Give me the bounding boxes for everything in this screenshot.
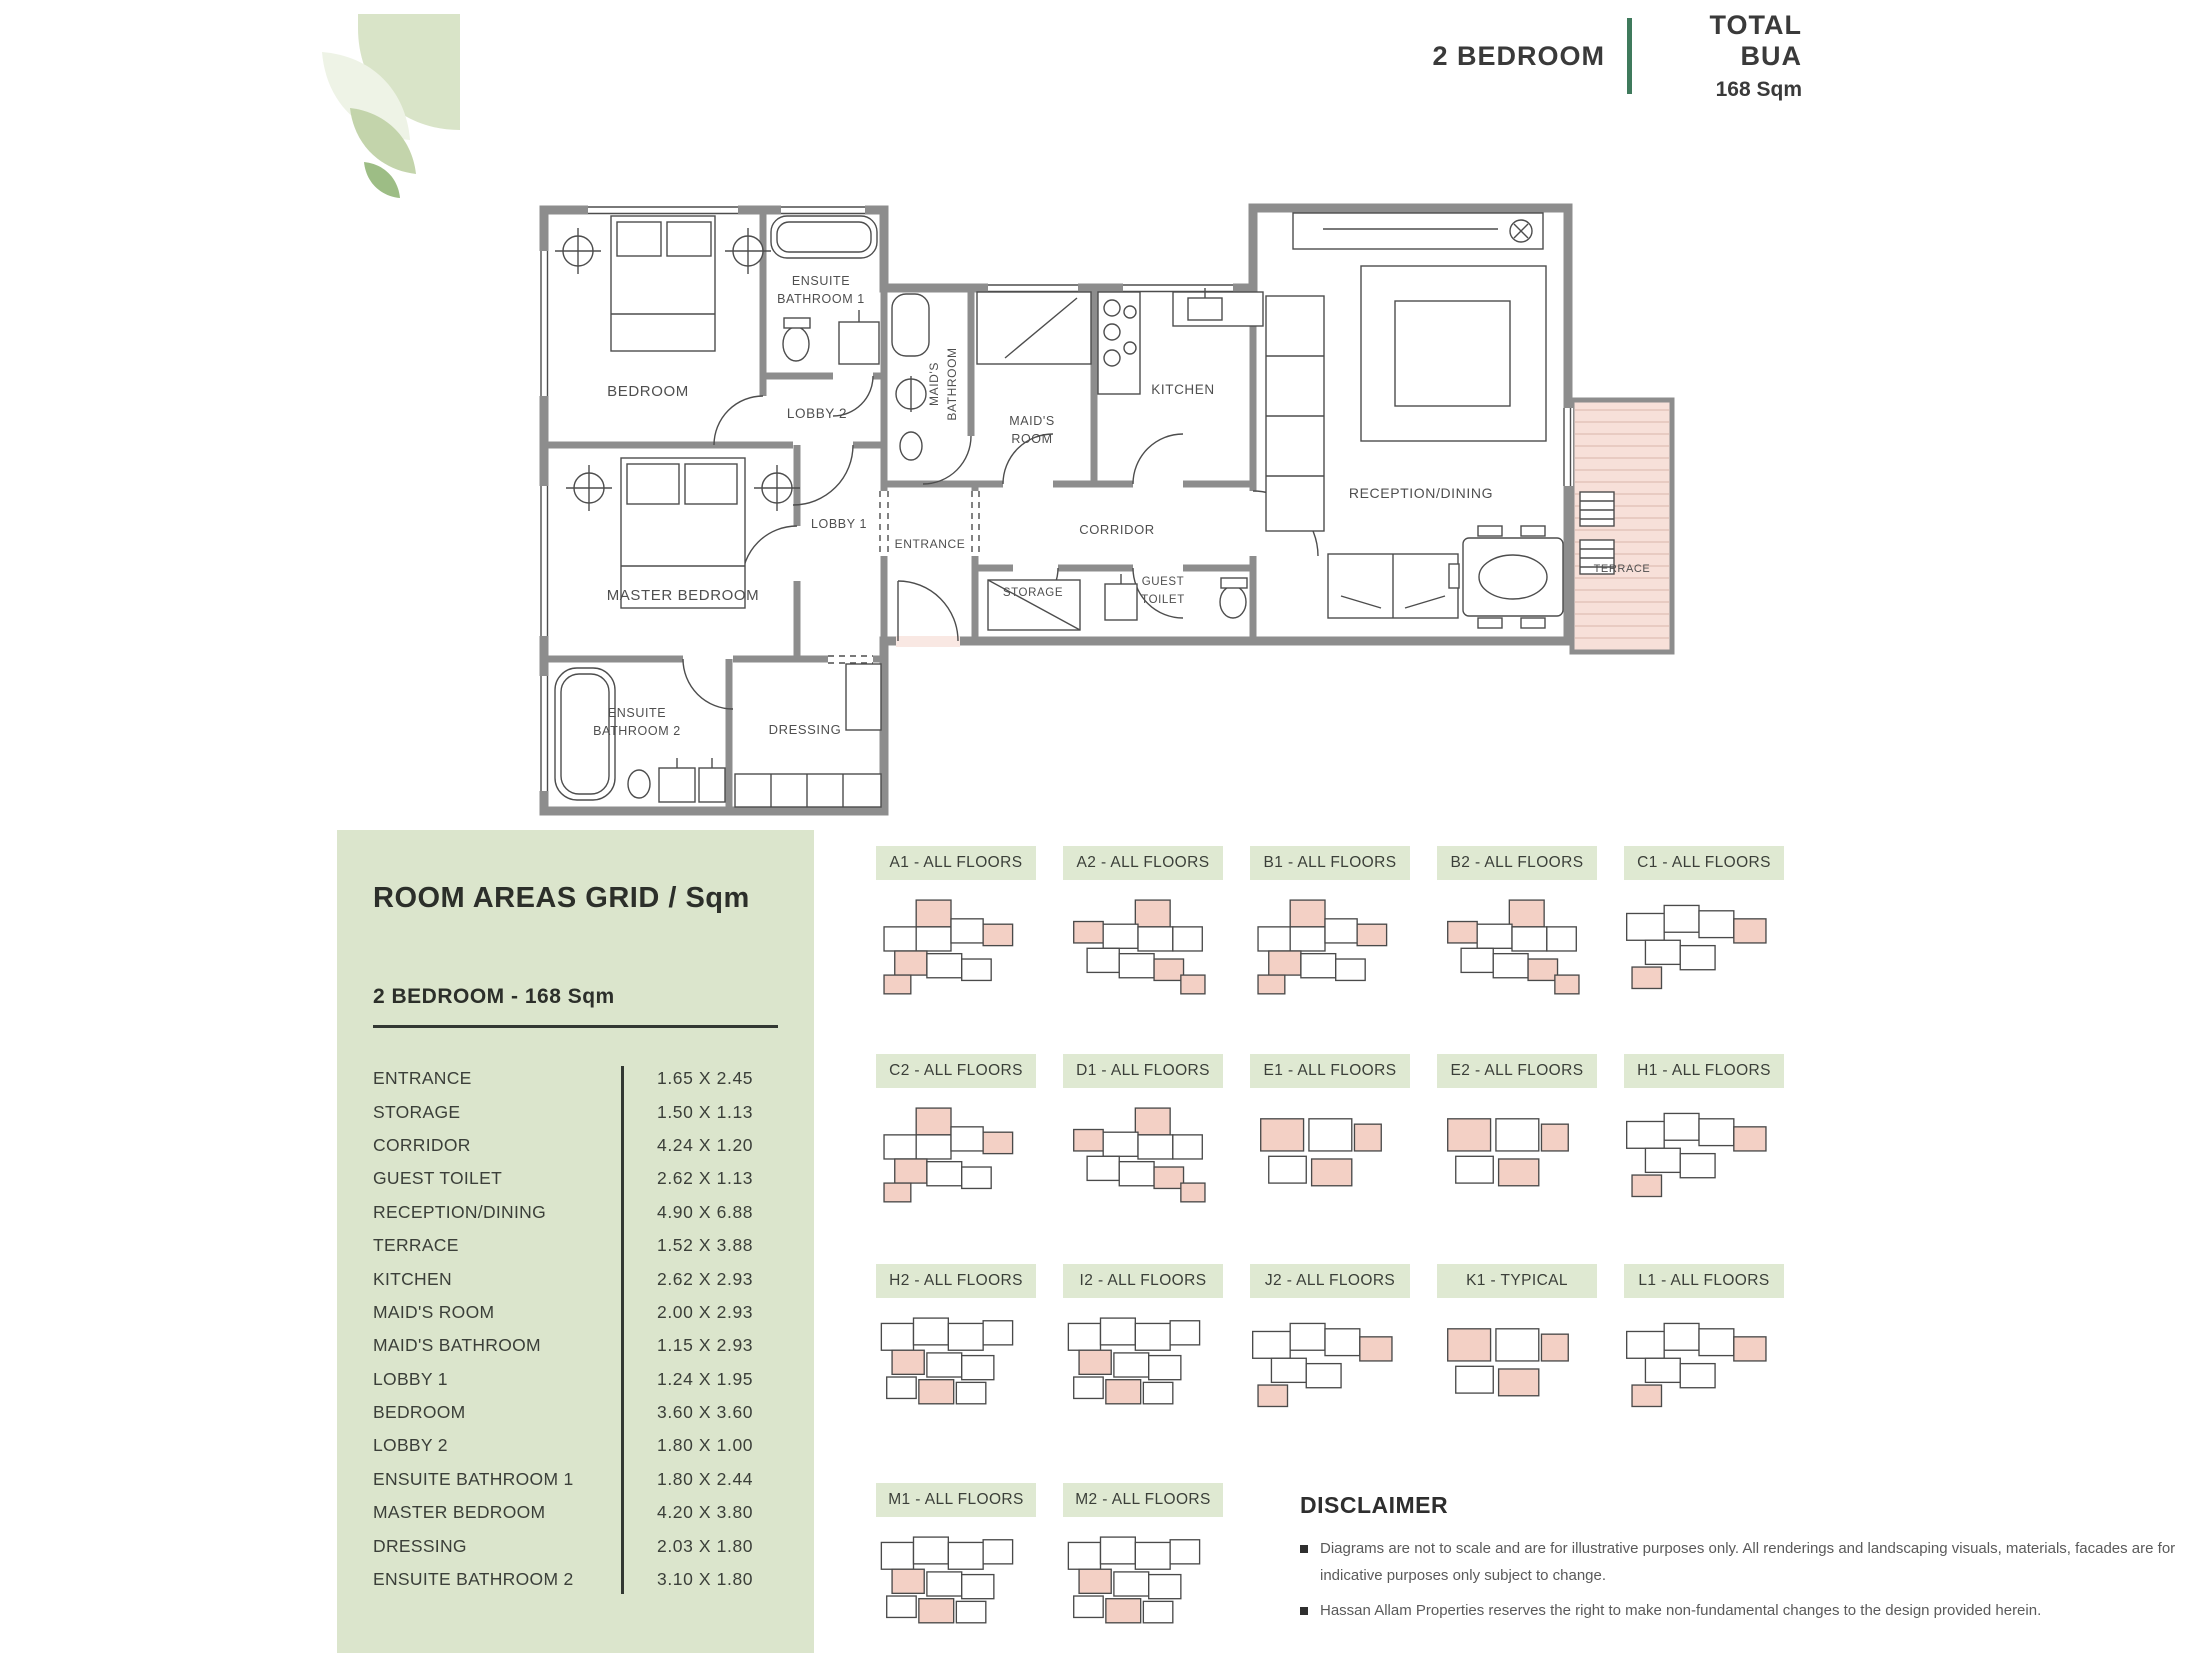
room-area-row: RECEPTION/DINING4.90 X 6.88	[373, 1196, 778, 1229]
header: 2 BEDROOM TOTAL BUA 168 Sqm	[1432, 18, 1802, 94]
room-label-maids_bathroom: MAID'S	[927, 362, 941, 406]
unit-diagram-cell: M1 - ALL FLOORS	[876, 1483, 1036, 1651]
table-divider	[621, 1066, 624, 1594]
room-name: ENSUITE BATHROOM 2	[373, 1569, 621, 1590]
front-door-gap	[896, 636, 960, 647]
building-footprint-icon	[876, 1314, 1026, 1432]
room-area-row: MAID'S BATHROOM1.15 X 2.93	[373, 1329, 778, 1362]
room-area-row: MAID'S ROOM2.00 X 2.93	[373, 1296, 778, 1329]
unit-diagram-cell: A2 - ALL FLOORS	[1063, 846, 1223, 1014]
disclaimer-bullet: Diagrams are not to scale and are for il…	[1300, 1535, 2180, 1589]
unit-diagram-label: H2 - ALL FLOORS	[876, 1264, 1036, 1298]
room-label-ensuite1: BATHROOM 1	[777, 292, 865, 306]
room-dims: 1.80 X 1.00	[657, 1435, 753, 1456]
unit-diagram-cell: B1 - ALL FLOORS	[1250, 846, 1410, 1014]
unit-diagram-cell: J2 - ALL FLOORS	[1250, 1264, 1410, 1432]
room-label-master_bedroom: MASTER BEDROOM	[607, 587, 760, 604]
unit-diagram-label: I2 - ALL FLOORS	[1063, 1264, 1223, 1298]
room-areas-table: ENTRANCE1.65 X 2.45STORAGE1.50 X 1.13COR…	[373, 1062, 778, 1596]
unit-diagram-cell: H2 - ALL FLOORS	[876, 1264, 1036, 1432]
total-bua-value: 168 Sqm	[1652, 78, 1802, 102]
header-divider	[1627, 18, 1632, 94]
room-dims: 1.15 X 2.93	[657, 1335, 753, 1356]
room-label-kitchen: KITCHEN	[1151, 382, 1214, 397]
unit-diagram-cell: M2 - ALL FLOORS	[1063, 1483, 1223, 1651]
unit-diagram-label: L1 - ALL FLOORS	[1624, 1264, 1784, 1298]
room-dims: 2.62 X 2.93	[657, 1269, 753, 1290]
room-name: ENSUITE BATHROOM 1	[373, 1469, 621, 1490]
terrace-deck	[1572, 400, 1672, 652]
room-label-storage: STORAGE	[1003, 587, 1063, 599]
building-footprint-icon	[1624, 896, 1774, 1014]
unit-diagram-label: H1 - ALL FLOORS	[1624, 1054, 1784, 1088]
room-area-row: DRESSING2.03 X 1.80	[373, 1529, 778, 1562]
unit-diagram-label: M2 - ALL FLOORS	[1063, 1483, 1223, 1517]
room-name: MASTER BEDROOM	[373, 1502, 621, 1523]
disclaimer-text: Diagrams are not to scale and are for il…	[1320, 1535, 2180, 1589]
building-footprint-icon	[876, 1533, 1026, 1651]
unit-diagram-cell: C2 - ALL FLOORS	[876, 1054, 1036, 1222]
room-label-entrance: ENTRANCE	[895, 537, 966, 551]
brand-leaf-logo	[320, 12, 460, 202]
building-footprint-icon	[1437, 1104, 1587, 1222]
building-footprint-icon	[1437, 896, 1587, 1014]
room-label-maids_room: MAID'S	[1009, 414, 1055, 428]
room-area-row: GUEST TOILET2.62 X 1.13	[373, 1162, 778, 1195]
room-label-reception: RECEPTION/DINING	[1349, 485, 1493, 501]
building-footprint-icon	[1437, 1314, 1587, 1432]
building-footprint-icon	[1063, 1314, 1213, 1432]
room-name: LOBBY 2	[373, 1435, 621, 1456]
room-dims: 4.20 X 3.80	[657, 1502, 753, 1523]
room-dims: 4.90 X 6.88	[657, 1202, 753, 1223]
room-label-ensuite2: BATHROOM 2	[593, 724, 681, 738]
unit-diagram-label: C2 - ALL FLOORS	[876, 1054, 1036, 1088]
unit-diagram-label: A2 - ALL FLOORS	[1063, 846, 1223, 880]
unit-diagram-cell: E1 - ALL FLOORS	[1250, 1054, 1410, 1222]
room-area-row: KITCHEN2.62 X 2.93	[373, 1262, 778, 1295]
room-name: LOBBY 1	[373, 1369, 621, 1390]
room-dims: 1.80 X 2.44	[657, 1469, 753, 1490]
building-footprint-icon	[1063, 1533, 1213, 1651]
room-dims: 1.65 X 2.45	[657, 1068, 753, 1089]
room-area-row: MASTER BEDROOM4.20 X 3.80	[373, 1496, 778, 1529]
room-name: CORRIDOR	[373, 1135, 621, 1156]
room-name: TERRACE	[373, 1235, 621, 1256]
unit-diagram-cell: L1 - ALL FLOORS	[1624, 1264, 1784, 1432]
unit-diagram-label: M1 - ALL FLOORS	[876, 1483, 1036, 1517]
room-area-row: ENTRANCE1.65 X 2.45	[373, 1062, 778, 1095]
room-label-dressing: DRESSING	[769, 722, 842, 737]
room-dims: 3.10 X 1.80	[657, 1569, 753, 1590]
unit-diagram-cell: H1 - ALL FLOORS	[1624, 1054, 1784, 1222]
disclaimer-title: DISCLAIMER	[1300, 1492, 2180, 1519]
room-label-guest_toilet: TOILET	[1141, 594, 1185, 606]
room-dims: 2.03 X 1.80	[657, 1536, 753, 1557]
bullet-square-icon	[1300, 1545, 1308, 1553]
unit-diagram-cell: A1 - ALL FLOORS	[876, 846, 1036, 1014]
room-name: DRESSING	[373, 1536, 621, 1557]
room-area-row: LOBBY 11.24 X 1.95	[373, 1363, 778, 1396]
unit-diagram-cell: B2 - ALL FLOORS	[1437, 846, 1597, 1014]
room-area-row: ENSUITE BATHROOM 23.10 X 1.80	[373, 1563, 778, 1596]
total-bua-label: TOTAL BUA	[1652, 10, 1802, 72]
room-dims: 4.24 X 1.20	[657, 1135, 753, 1156]
building-footprint-icon	[1063, 896, 1213, 1014]
unit-diagram-cell: C1 - ALL FLOORS	[1624, 846, 1784, 1014]
room-dims: 1.50 X 1.13	[657, 1102, 753, 1123]
room-area-row: TERRACE1.52 X 3.88	[373, 1229, 778, 1262]
room-label-maids_room: ROOM	[1011, 432, 1052, 446]
unit-diagram-label: B2 - ALL FLOORS	[1437, 846, 1597, 880]
disclaimer-list: Diagrams are not to scale and are for il…	[1300, 1535, 2180, 1624]
unit-diagram-cell: E2 - ALL FLOORS	[1437, 1054, 1597, 1222]
unit-diagram-label: E2 - ALL FLOORS	[1437, 1054, 1597, 1088]
furniture	[555, 216, 1563, 807]
building-footprint-icon	[876, 896, 1026, 1014]
room-dims: 1.24 X 1.95	[657, 1369, 753, 1390]
room-area-row: STORAGE1.50 X 1.13	[373, 1095, 778, 1128]
subtitle-rule	[373, 1025, 778, 1028]
room-label-ensuite1: ENSUITE	[792, 274, 850, 288]
room-name: ENTRANCE	[373, 1068, 621, 1089]
room-name: KITCHEN	[373, 1269, 621, 1290]
room-area-row: LOBBY 21.80 X 1.00	[373, 1429, 778, 1462]
room-area-row: BEDROOM3.60 X 3.60	[373, 1396, 778, 1429]
room-name: STORAGE	[373, 1102, 621, 1123]
unit-diagram-cell: K1 - TYPICAL	[1437, 1264, 1597, 1432]
ceiling-fan-icon	[1510, 220, 1532, 242]
disclaimer-bullet: Hassan Allam Properties reserves the rig…	[1300, 1597, 2180, 1624]
reception-recess	[1293, 213, 1543, 249]
room-label-corridor: CORRIDOR	[1079, 522, 1155, 537]
building-footprint-icon	[876, 1104, 1026, 1222]
room-dims: 2.62 X 1.13	[657, 1168, 753, 1189]
room-name: BEDROOM	[373, 1402, 621, 1423]
room-name: MAID'S ROOM	[373, 1302, 621, 1323]
floor-plan-page: 2 BEDROOM TOTAL BUA 168 Sqm	[0, 0, 2200, 1653]
building-footprint-icon	[1250, 1314, 1400, 1432]
unit-diagram-label: E1 - ALL FLOORS	[1250, 1054, 1410, 1088]
unit-diagram-label: C1 - ALL FLOORS	[1624, 846, 1784, 880]
unit-diagram-label: A1 - ALL FLOORS	[876, 846, 1036, 880]
unit-diagram-cell: I2 - ALL FLOORS	[1063, 1264, 1223, 1432]
unit-diagram-cell: D1 - ALL FLOORS	[1063, 1054, 1223, 1222]
unit-diagram-label: D1 - ALL FLOORS	[1063, 1054, 1223, 1088]
room-areas-panel: ROOM AREAS GRID / Sqm 2 BEDROOM - 168 Sq…	[337, 830, 814, 1653]
room-name: RECEPTION/DINING	[373, 1202, 621, 1223]
unit-diagram-label: K1 - TYPICAL	[1437, 1264, 1597, 1298]
building-footprint-icon	[1624, 1104, 1774, 1222]
room-name: MAID'S BATHROOM	[373, 1335, 621, 1356]
room-area-row: CORRIDOR4.24 X 1.20	[373, 1129, 778, 1162]
building-footprint-icon	[1624, 1314, 1774, 1432]
room-areas-subtitle: 2 BEDROOM - 168 Sqm	[373, 985, 780, 1009]
room-name: GUEST TOILET	[373, 1168, 621, 1189]
unit-type-label: 2 BEDROOM	[1432, 41, 1605, 72]
unit-diagram-label: J2 - ALL FLOORS	[1250, 1264, 1410, 1298]
building-footprint-icon	[1250, 1104, 1400, 1222]
room-label-terrace: TERRACE	[1594, 563, 1651, 575]
room-dims: 1.52 X 3.88	[657, 1235, 753, 1256]
bullet-square-icon	[1300, 1607, 1308, 1615]
room-label-maids_bathroom: BATHROOM	[945, 347, 959, 420]
building-footprint-icon	[1063, 1104, 1213, 1222]
building-footprint-icon	[1250, 896, 1400, 1014]
room-label-ensuite2: ENSUITE	[608, 706, 666, 720]
room-dims: 2.00 X 2.93	[657, 1302, 753, 1323]
disclaimer: DISCLAIMER Diagrams are not to scale and…	[1300, 1492, 2180, 1624]
room-dims: 3.60 X 3.60	[657, 1402, 753, 1423]
room-label-lobby1: LOBBY 1	[811, 517, 867, 531]
floor-plan: BEDROOMENSUITEBATHROOM 1LOBBY 2MAID'SBAT…	[533, 196, 1683, 826]
unit-diagram-label: B1 - ALL FLOORS	[1250, 846, 1410, 880]
disclaimer-text: Hassan Allam Properties reserves the rig…	[1320, 1597, 2041, 1624]
room-areas-title: ROOM AREAS GRID / Sqm	[373, 882, 780, 915]
room-label-guest_toilet: GUEST	[1142, 576, 1185, 588]
room-area-row: ENSUITE BATHROOM 11.80 X 2.44	[373, 1463, 778, 1496]
room-label-bedroom: BEDROOM	[607, 383, 689, 400]
room-label-lobby2: LOBBY 2	[787, 406, 847, 421]
